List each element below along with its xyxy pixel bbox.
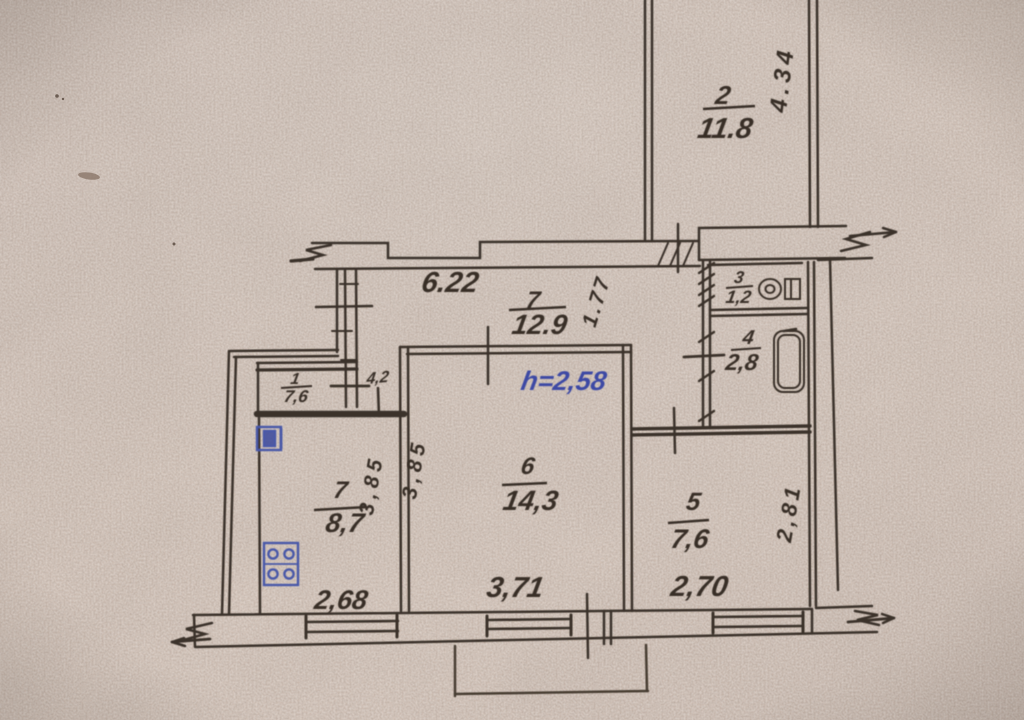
svg-text:7,6: 7,6 <box>283 386 311 406</box>
svg-text:12.9: 12.9 <box>510 308 570 340</box>
svg-text:6.22: 6.22 <box>419 267 481 299</box>
svg-text:4,2: 4,2 <box>364 368 390 389</box>
svg-text:h=2,58: h=2,58 <box>519 365 610 396</box>
svg-text:14,3: 14,3 <box>501 484 561 516</box>
svg-text:1,2: 1,2 <box>724 287 753 307</box>
svg-text:11.8: 11.8 <box>695 113 756 145</box>
svg-text:2,70: 2,70 <box>667 571 730 603</box>
svg-text:2,8: 2,8 <box>723 349 761 375</box>
svg-text:2,68: 2,68 <box>311 584 371 615</box>
svg-text:7,6: 7,6 <box>669 523 713 554</box>
svg-text:3,71: 3,71 <box>484 572 546 604</box>
